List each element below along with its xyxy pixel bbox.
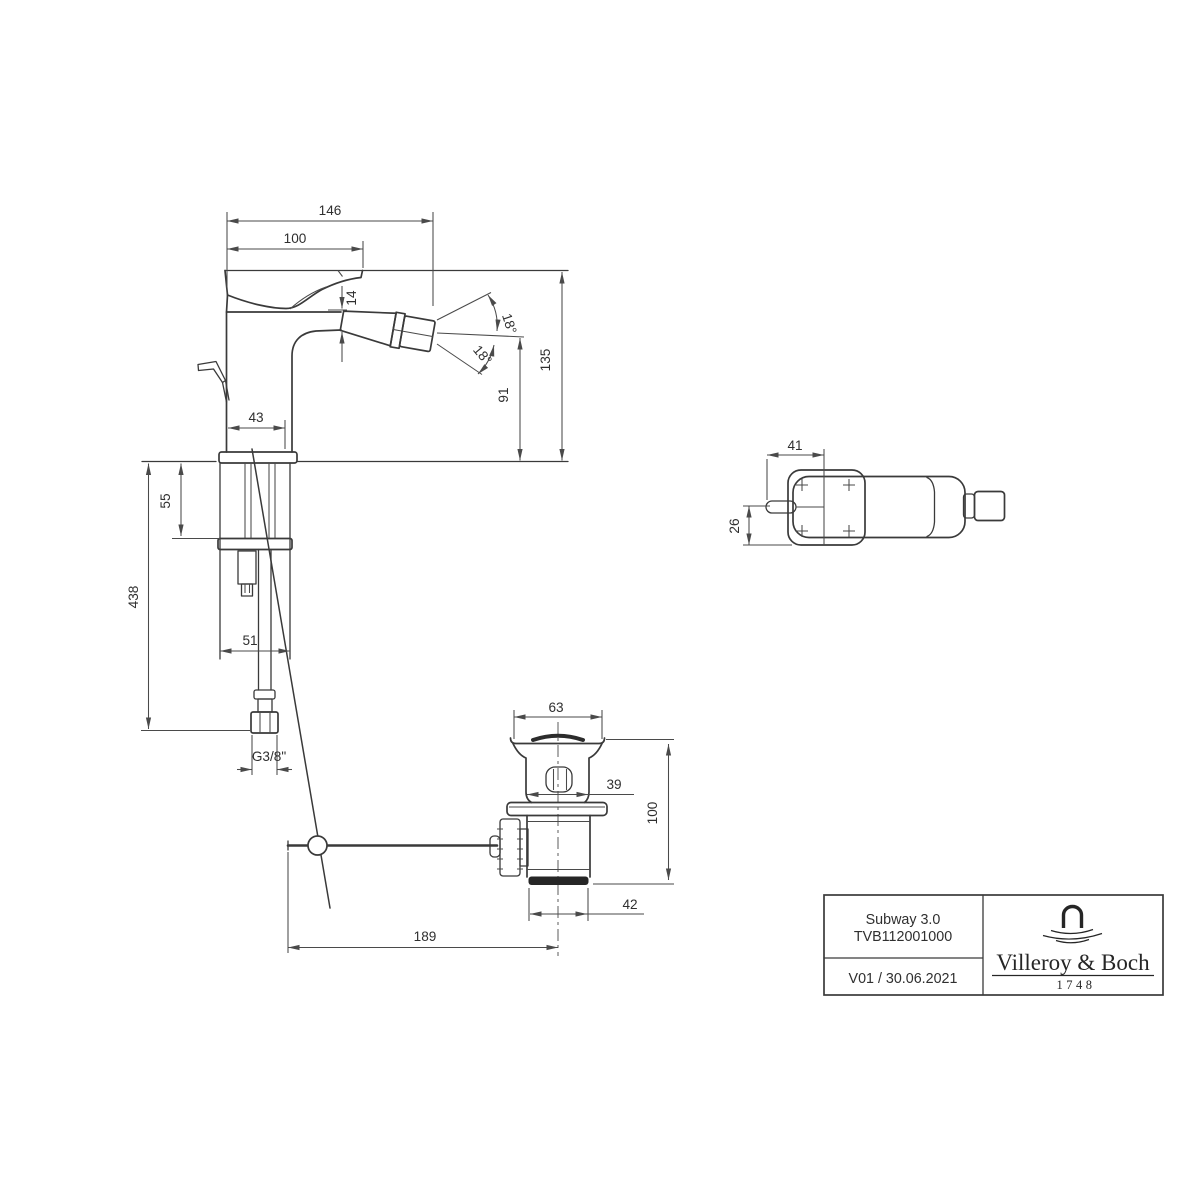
body-right-fillet (292, 330, 341, 452)
angle-arc-upper (488, 295, 497, 331)
cartridge-body (238, 551, 256, 584)
dim-label-spout-reach: 100 (284, 231, 307, 246)
faucet-side-view (198, 271, 568, 464)
knurl-teeth (497, 829, 523, 869)
under-counter-assembly (142, 449, 568, 908)
technical-drawing-canvas: 146 100 14 18° 18° 91 135 (0, 0, 1200, 1200)
cartridge-pins (245, 584, 250, 593)
brand-year: 1748 (1057, 978, 1096, 992)
spout-nozzle (339, 303, 436, 353)
rod-pivot-ball (308, 836, 327, 855)
faucet-top-view (766, 449, 1005, 545)
drain-body-sides (527, 816, 590, 878)
dimension-shaft-width: 51 (220, 633, 290, 651)
dim-label-waste-body-dia: 42 (622, 897, 637, 912)
cartridge-plug (242, 584, 253, 596)
dim-label-total-height: 135 (538, 349, 553, 372)
drain-flange (507, 803, 607, 816)
popup-knob (198, 362, 226, 383)
technical-drawing-page: 146 100 14 18° 18° 91 135 (0, 0, 1200, 1200)
drain-flare-right (585, 744, 603, 803)
dim-label-total-length: 146 (319, 203, 342, 218)
dimension-waste-neck: 39 (527, 777, 634, 795)
base-flange (219, 452, 297, 463)
dim-label-hose-length: 438 (126, 586, 141, 609)
dim-label-shaft-width: 51 (242, 633, 257, 648)
dim-label-waste-height: 100 (645, 801, 660, 824)
hex-nut (251, 712, 278, 733)
dimension-top-length: 41 (767, 438, 824, 500)
dimension-thread: G3/8" (237, 735, 292, 775)
handle-notch (338, 271, 343, 277)
supply-hose (259, 550, 272, 691)
dim-label-outlet-height: 91 (496, 387, 511, 402)
faucet-front-edge (225, 271, 228, 453)
water-ripples-icon (1043, 930, 1102, 943)
dimension-total-height: 135 (538, 272, 562, 461)
knurled-knob (500, 819, 520, 876)
product-name: Subway 3.0 (866, 912, 941, 928)
hose-ferrule (254, 690, 275, 699)
dim-label-spout-mouth: 14 (344, 290, 359, 306)
dimension-spout-mouth: 14 (328, 286, 359, 362)
article-number: TVB112001000 (854, 929, 952, 945)
drain-slot (546, 767, 572, 792)
dim-label-spray-angle-upper: 18° (499, 312, 520, 336)
dimensions: 146 100 14 18° 18° 91 135 (126, 203, 824, 953)
top-view-body-joint (927, 478, 935, 537)
dimension-top-offset: 26 (727, 506, 792, 545)
dimension-hose-length: 438 (126, 464, 250, 731)
dimension-outlet-height: 91 (496, 338, 520, 461)
dimension-total-length: 146 (227, 203, 433, 306)
dim-label-waste-cap-dia: 63 (548, 700, 563, 715)
tap-icon (1064, 907, 1082, 929)
drain-rim (511, 738, 605, 744)
dim-label-thread: G3/8" (252, 749, 286, 764)
dimension-body-depth: 43 (228, 410, 285, 449)
dim-label-rod-reach: 189 (414, 929, 437, 944)
brand-logo: Villeroy & Boch 1748 (992, 907, 1154, 993)
dim-label-body-depth: 43 (248, 410, 263, 425)
drain-gasket (529, 877, 589, 886)
title-block: Subway 3.0 TVB112001000 V01 / 30.06.2021… (824, 895, 1163, 995)
shaft-zone-sides (220, 463, 290, 659)
nozzle-cone (339, 304, 396, 346)
hose-stem (258, 699, 272, 712)
pop-up-drain-view (490, 722, 607, 956)
drain-slot-pin (554, 769, 567, 790)
drain-body-seams (527, 822, 590, 870)
dimension-spout-reach: 100 (227, 231, 363, 268)
mounting-plate (218, 539, 292, 550)
hex-nut-facets (260, 712, 270, 733)
nozzle-midline (393, 330, 432, 337)
dimension-waste-body-dia: 42 (529, 888, 644, 921)
spray-line-upper (437, 293, 491, 321)
version-date: V01 / 30.06.2021 (849, 971, 958, 987)
dim-label-spray-angle-lower: 18° (470, 342, 495, 367)
top-view-handle-tab (766, 501, 796, 513)
drain-flare-left (513, 744, 532, 803)
dimension-max-counter: 55 (158, 464, 220, 539)
dim-label-top-offset: 26 (727, 518, 742, 533)
dim-label-waste-neck: 39 (606, 777, 621, 792)
brand-name: Villeroy & Boch (996, 950, 1150, 975)
fixing-cross-marks (796, 479, 855, 537)
dim-label-top-length: 41 (787, 438, 802, 453)
dimension-waste-height: 100 (593, 740, 674, 885)
dim-label-max-counter: 55 (158, 493, 173, 508)
top-view-aerator (975, 492, 1005, 521)
